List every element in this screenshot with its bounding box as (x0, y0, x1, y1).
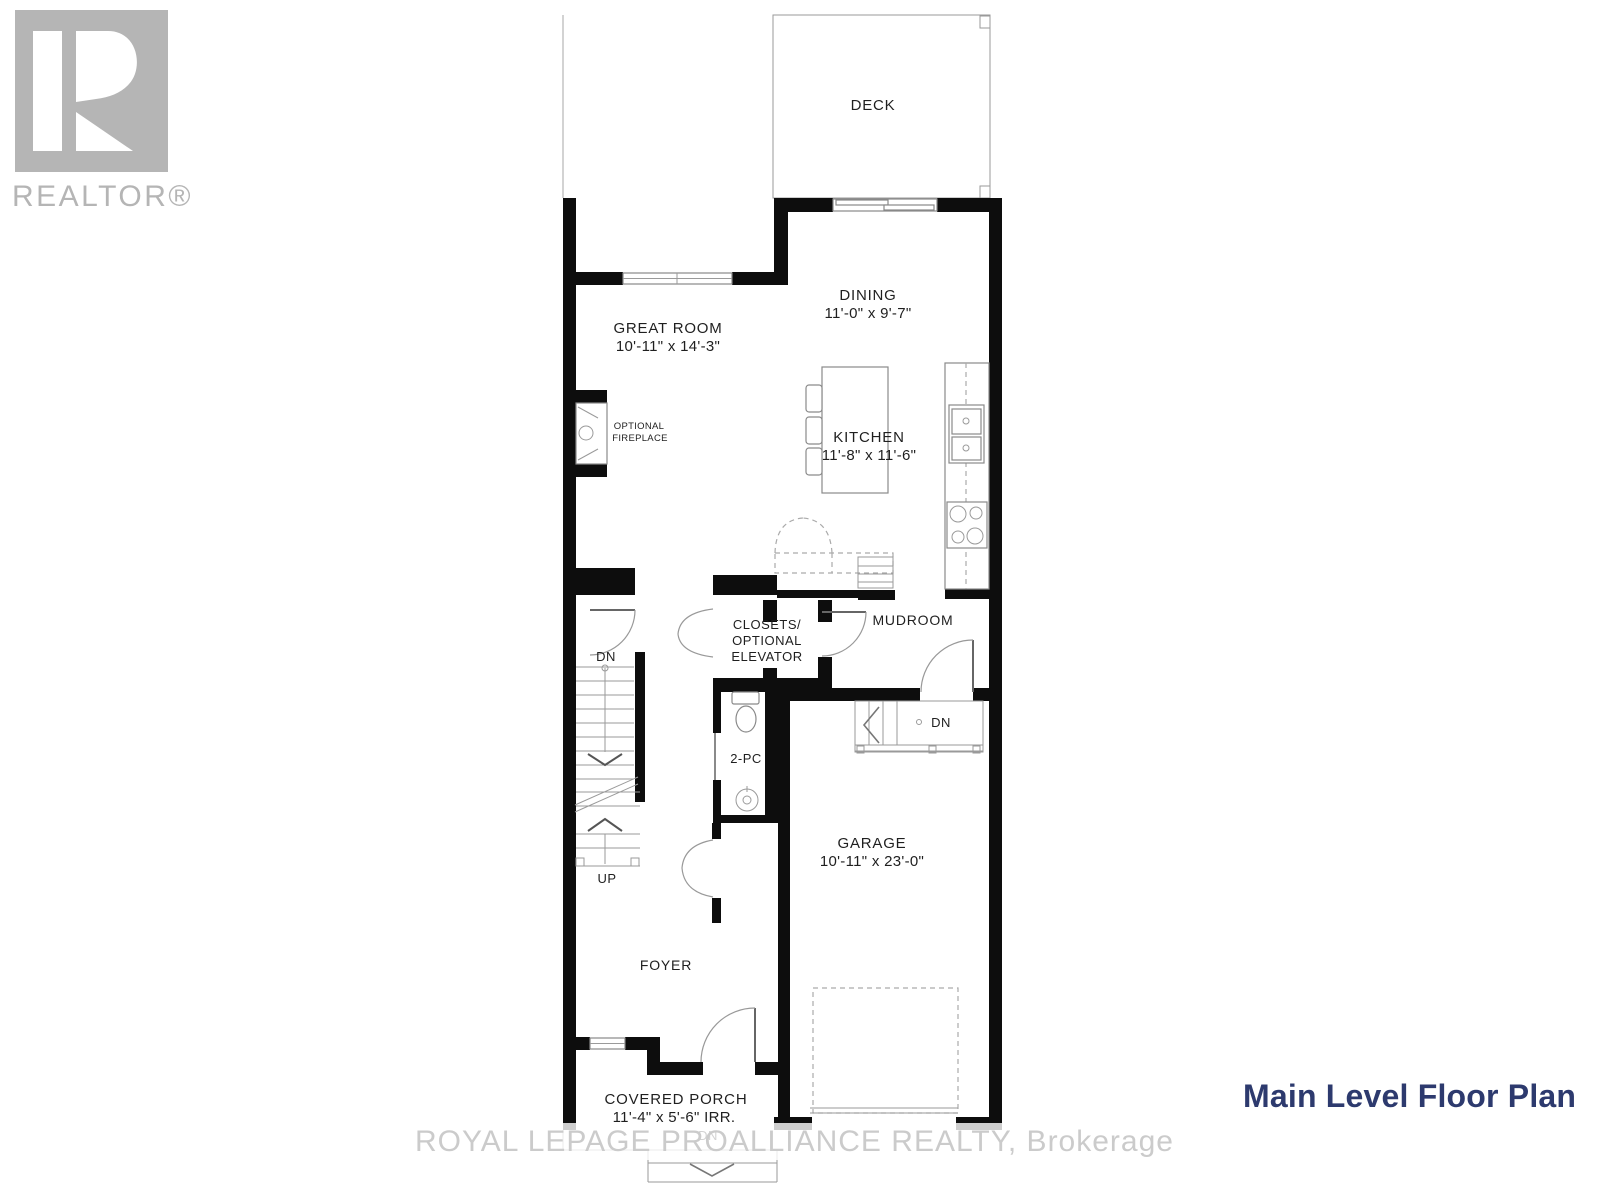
deck-label: DECK (851, 97, 896, 114)
closets-label-3: ELEVATOR (731, 649, 802, 664)
mudroom-to-garage-door (921, 640, 973, 692)
closets-label-2: OPTIONAL (732, 633, 802, 648)
garage-dim: 10'-11" x 23'-0" (820, 853, 924, 870)
garage-staircase (855, 701, 983, 753)
stairs-up-label: UP (597, 871, 616, 886)
garage-dn-label: DN (931, 715, 951, 730)
page-title: Main Level Floor Plan (1243, 1078, 1576, 1115)
mudroom-label: MUDROOM (872, 612, 953, 628)
main-staircase (575, 665, 640, 866)
toilet (732, 692, 759, 732)
patio-slider-door (833, 199, 937, 211)
kitchen-fixtures (775, 363, 989, 589)
floor-plan-drawing: DECK GREAT ROOM 10'-11" x 14'-3" DINING … (0, 0, 1598, 1200)
kitchen-sink (949, 405, 984, 463)
bathroom-sink (736, 786, 758, 811)
kitchen-label: KITCHEN (833, 429, 904, 446)
floor-plan-page: REALTOR® (0, 0, 1598, 1200)
dining-label: DINING (839, 287, 896, 304)
closets-label-1: CLOSETS/ (733, 617, 801, 632)
dining-dim: 11'-0" x 9'-7" (824, 305, 911, 322)
foyer-label: FOYER (640, 957, 692, 973)
bath-label: 2-PC (730, 751, 762, 766)
optional-pantry (775, 518, 893, 573)
garage-label: GARAGE (838, 835, 907, 852)
fireplace-label-2: FIREPLACE (612, 433, 668, 444)
stairs-dn-label: DN (596, 649, 616, 664)
great-room-dim: 10'-11" x 14'-3" (616, 338, 720, 355)
deck-outline (563, 15, 990, 198)
garage-parking (810, 988, 958, 1113)
porch-label: COVERED PORCH (605, 1091, 748, 1108)
kitchen-dim: 11'-8" x 11'-6" (822, 447, 917, 464)
cooktop (947, 502, 987, 548)
foyer-closet-doors (682, 840, 713, 897)
front-door (701, 1008, 755, 1062)
closet-double-doors (678, 609, 713, 657)
brokerage-watermark: ROYAL LEPAGE PROALLIANCE REALTY, Brokera… (415, 1123, 1150, 1160)
great-room-label: GREAT ROOM (613, 320, 722, 337)
fireplace-label-1: OPTIONAL (614, 421, 664, 432)
